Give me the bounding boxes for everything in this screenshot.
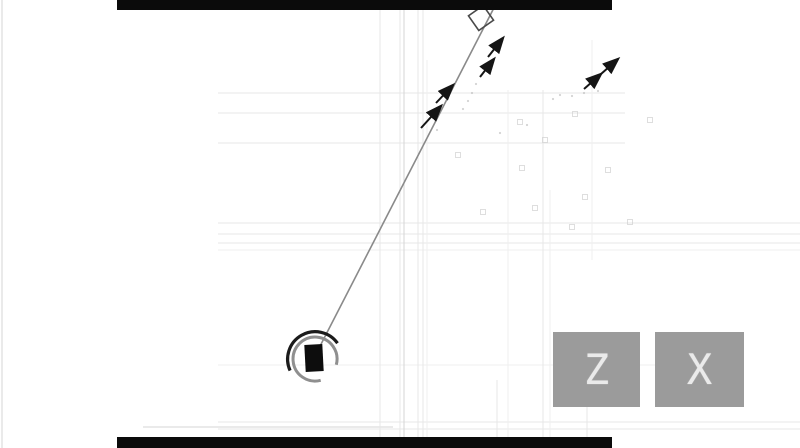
particle-square [573, 112, 578, 117]
aim-line [317, 0, 498, 352]
game-stage: Z X [0, 0, 800, 448]
velocity-arrow [480, 59, 494, 77]
particle-square [628, 220, 633, 225]
particle-dot [471, 92, 473, 94]
particle-square [456, 153, 461, 158]
button-x-label: X [687, 345, 712, 394]
button-z-label: Z [584, 345, 609, 394]
particle-dot [436, 129, 438, 131]
particle-dot [499, 132, 501, 134]
double-arrow [584, 59, 618, 89]
button-x[interactable]: X [655, 332, 744, 407]
player-square [304, 344, 323, 372]
velocity-arrow [488, 38, 503, 57]
letterbox-top-bar [117, 0, 612, 10]
particle-square [648, 118, 653, 123]
particle-dot [583, 92, 585, 94]
particle-dot [475, 83, 477, 85]
particle-dot [526, 124, 528, 126]
particle-dot [571, 95, 573, 97]
particle-dot [597, 90, 599, 92]
particle-dot [559, 94, 561, 96]
button-z[interactable]: Z [553, 332, 640, 407]
letterbox-bottom-bar [117, 437, 612, 448]
particle-square [533, 206, 538, 211]
particle-dot [552, 98, 554, 100]
particle-dot [462, 108, 464, 110]
particle-square [481, 210, 486, 215]
particle-square [583, 195, 588, 200]
particle-square [520, 166, 525, 171]
particle-square [606, 168, 611, 173]
particle-dot [467, 100, 469, 102]
particle-square [570, 225, 575, 230]
particle-square [518, 120, 523, 125]
